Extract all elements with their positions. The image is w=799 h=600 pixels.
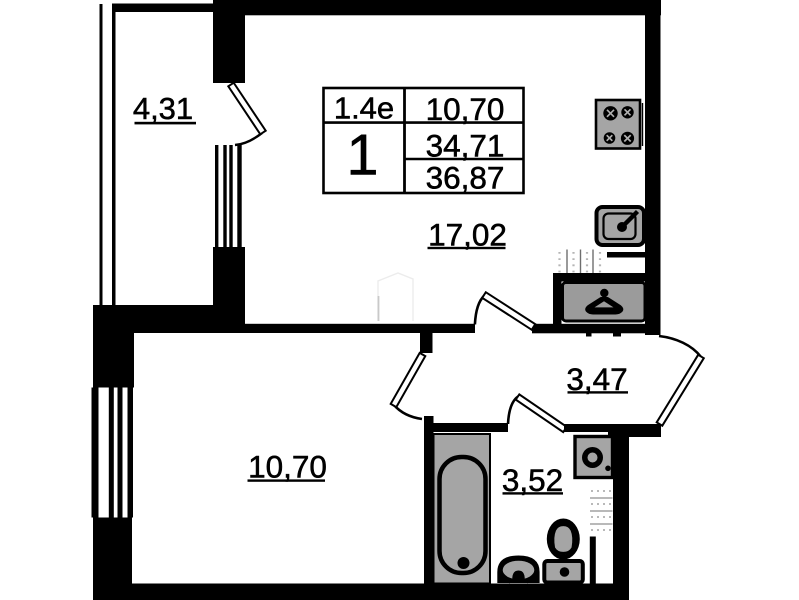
svg-text:36,87: 36,87 xyxy=(426,160,505,196)
svg-text:1: 1 xyxy=(347,123,379,187)
svg-text:10,70: 10,70 xyxy=(426,91,505,127)
svg-text:10,70: 10,70 xyxy=(248,449,327,485)
svg-text:1.4e: 1.4e xyxy=(334,91,394,126)
svg-text:4,31: 4,31 xyxy=(133,91,193,126)
svg-text:34,71: 34,71 xyxy=(426,127,505,163)
